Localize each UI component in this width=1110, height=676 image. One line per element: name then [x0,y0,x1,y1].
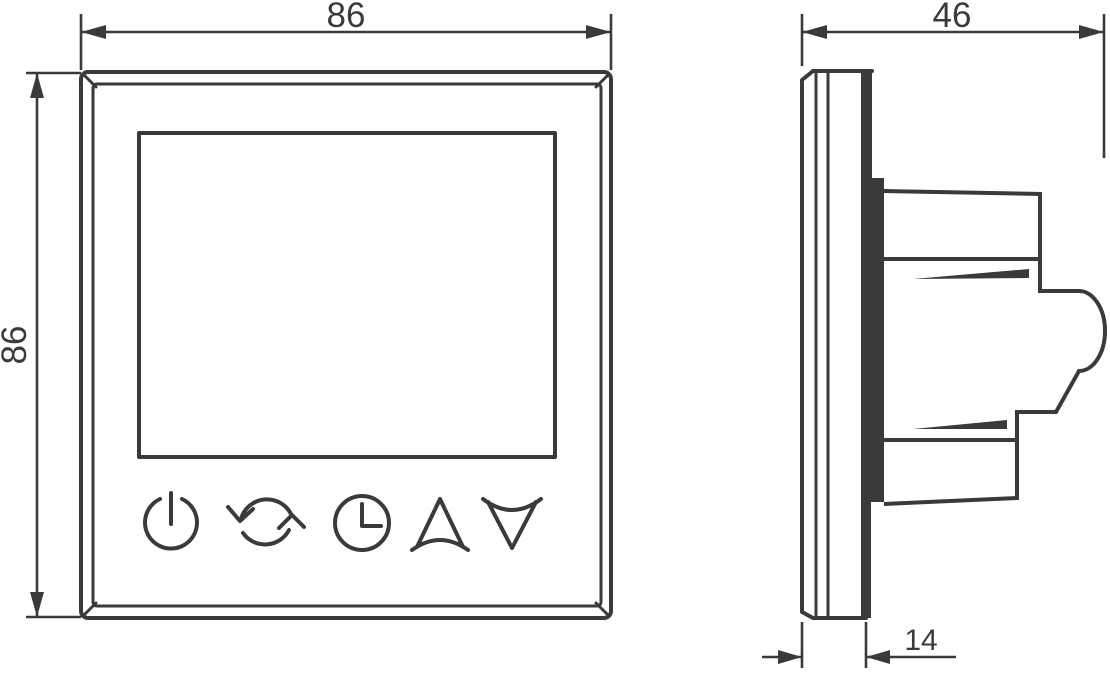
panel-thickness-value: 14 [904,624,937,657]
dimension-front-width: 86 [81,0,611,70]
cycle-icon-right-arrowhead [279,515,304,528]
thermostat-dimension-drawing: 86 86 46 14 [0,0,1110,676]
front-view [81,72,611,618]
side-view [802,71,1105,618]
cycle-icon-bottom-arc [243,530,289,544]
cycle-icon-left-arrowhead [228,507,253,521]
down-arrow-icon [483,499,541,548]
panel-thickness-arrowheads [778,650,890,664]
front-width-value: 86 [327,0,366,35]
side-depth-value: 46 [933,0,972,35]
front-bezel-outer [81,72,611,618]
clock-icon-hands [362,504,381,526]
side-panel-front-face [802,71,866,618]
clock-icon [335,496,389,550]
up-arrow-icon [412,499,468,550]
panel-thickness-extension-lines [802,622,866,668]
rear-module-body [884,191,1105,504]
cycle-icon-top-arc [241,499,291,519]
cycle-icon [228,499,304,544]
panel-back-plate [861,71,884,618]
display-screen [139,133,555,457]
dimension-side-depth: 46 [802,0,1104,158]
front-height-extension-lines [26,73,81,617]
side-depth-extension-lines [802,14,1104,158]
dimension-panel-thickness: 14 [762,622,956,668]
bezel-corner-chamfers [84,75,608,615]
front-height-value: 86 [0,326,34,365]
power-icon [145,493,197,549]
dimension-front-height: 86 [0,73,81,617]
